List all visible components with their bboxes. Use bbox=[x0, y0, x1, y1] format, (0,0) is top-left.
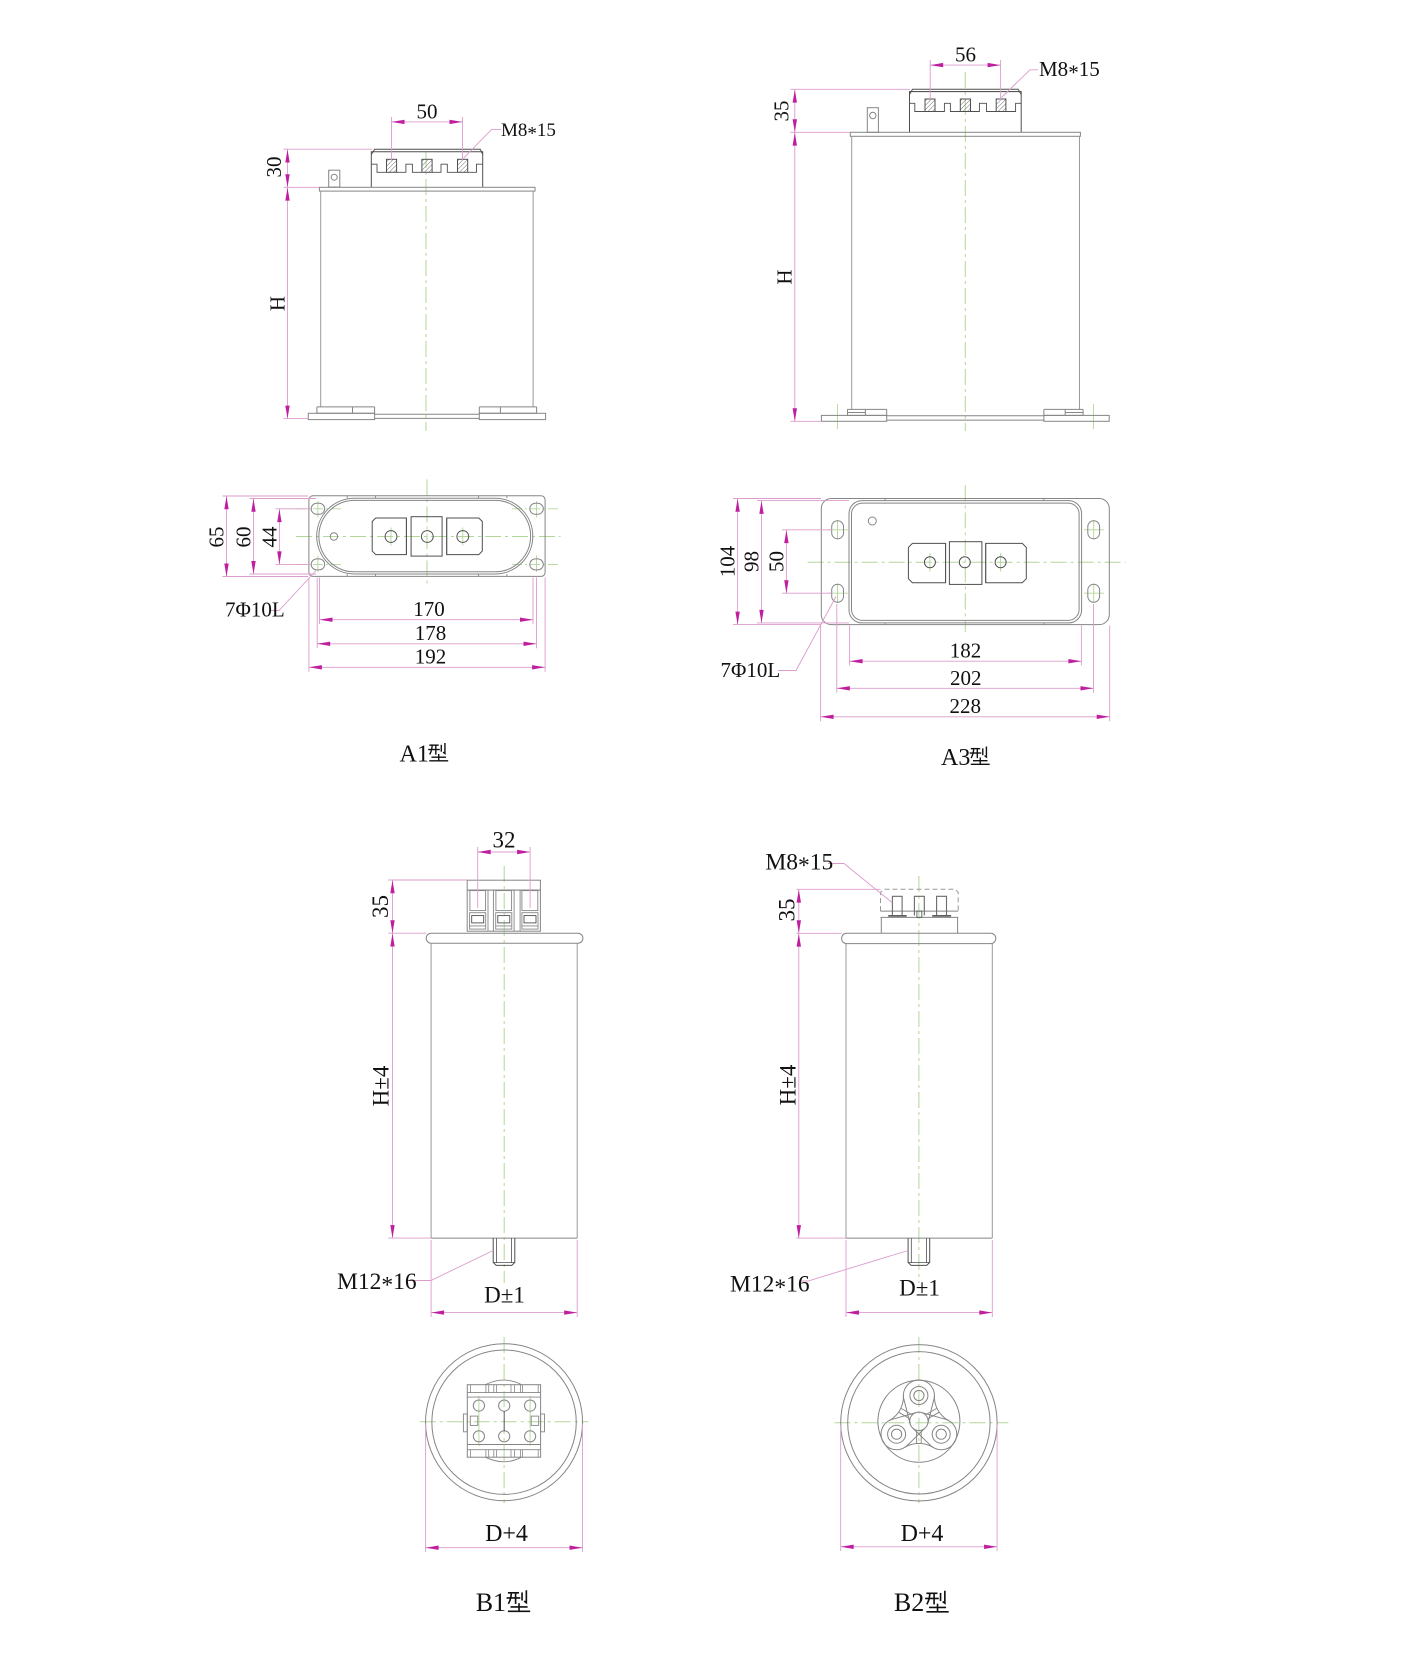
svg-text:192: 192 bbox=[415, 645, 447, 669]
svg-text:35: 35 bbox=[775, 899, 800, 922]
svg-text:H±4: H±4 bbox=[776, 1064, 801, 1105]
svg-text:32: 32 bbox=[493, 828, 516, 853]
svg-text:M8*15: M8*15 bbox=[765, 850, 833, 880]
svg-text:104: 104 bbox=[716, 545, 740, 577]
svg-text:65: 65 bbox=[205, 527, 229, 548]
svg-text:D±1: D±1 bbox=[899, 1276, 940, 1301]
svg-text:202: 202 bbox=[950, 666, 982, 690]
svg-text:35: 35 bbox=[368, 895, 393, 918]
svg-text:M12*16: M12*16 bbox=[337, 1269, 417, 1299]
svg-text:M12*16: M12*16 bbox=[730, 1272, 810, 1302]
svg-text:A1: A1 bbox=[400, 742, 429, 768]
svg-text:60: 60 bbox=[232, 527, 256, 548]
svg-text:M8*15: M8*15 bbox=[501, 120, 556, 145]
svg-text:178: 178 bbox=[415, 621, 447, 645]
svg-text:228: 228 bbox=[950, 694, 982, 718]
svg-text:98: 98 bbox=[740, 551, 764, 572]
svg-text:H: H bbox=[266, 296, 290, 311]
svg-text:56: 56 bbox=[955, 43, 976, 67]
svg-text:B2: B2 bbox=[894, 1588, 924, 1617]
svg-text:M8*15: M8*15 bbox=[1039, 57, 1100, 85]
svg-text:D+4: D+4 bbox=[485, 1521, 528, 1547]
svg-text:44: 44 bbox=[258, 526, 282, 548]
svg-text:50: 50 bbox=[417, 100, 438, 124]
svg-text:7Φ10L: 7Φ10L bbox=[721, 658, 781, 682]
svg-text:H: H bbox=[773, 269, 797, 284]
svg-text:170: 170 bbox=[413, 597, 445, 621]
svg-text:35: 35 bbox=[770, 101, 794, 122]
svg-text:30: 30 bbox=[262, 157, 286, 178]
svg-text:182: 182 bbox=[950, 639, 982, 663]
svg-text:D±1: D±1 bbox=[484, 1283, 525, 1308]
svg-text:50: 50 bbox=[765, 551, 789, 572]
svg-text:A3: A3 bbox=[941, 745, 970, 771]
svg-text:7Φ10L: 7Φ10L bbox=[225, 598, 285, 622]
svg-text:B1: B1 bbox=[476, 1588, 506, 1617]
svg-text:D+4: D+4 bbox=[901, 1521, 944, 1547]
svg-text:H±4: H±4 bbox=[369, 1065, 394, 1106]
